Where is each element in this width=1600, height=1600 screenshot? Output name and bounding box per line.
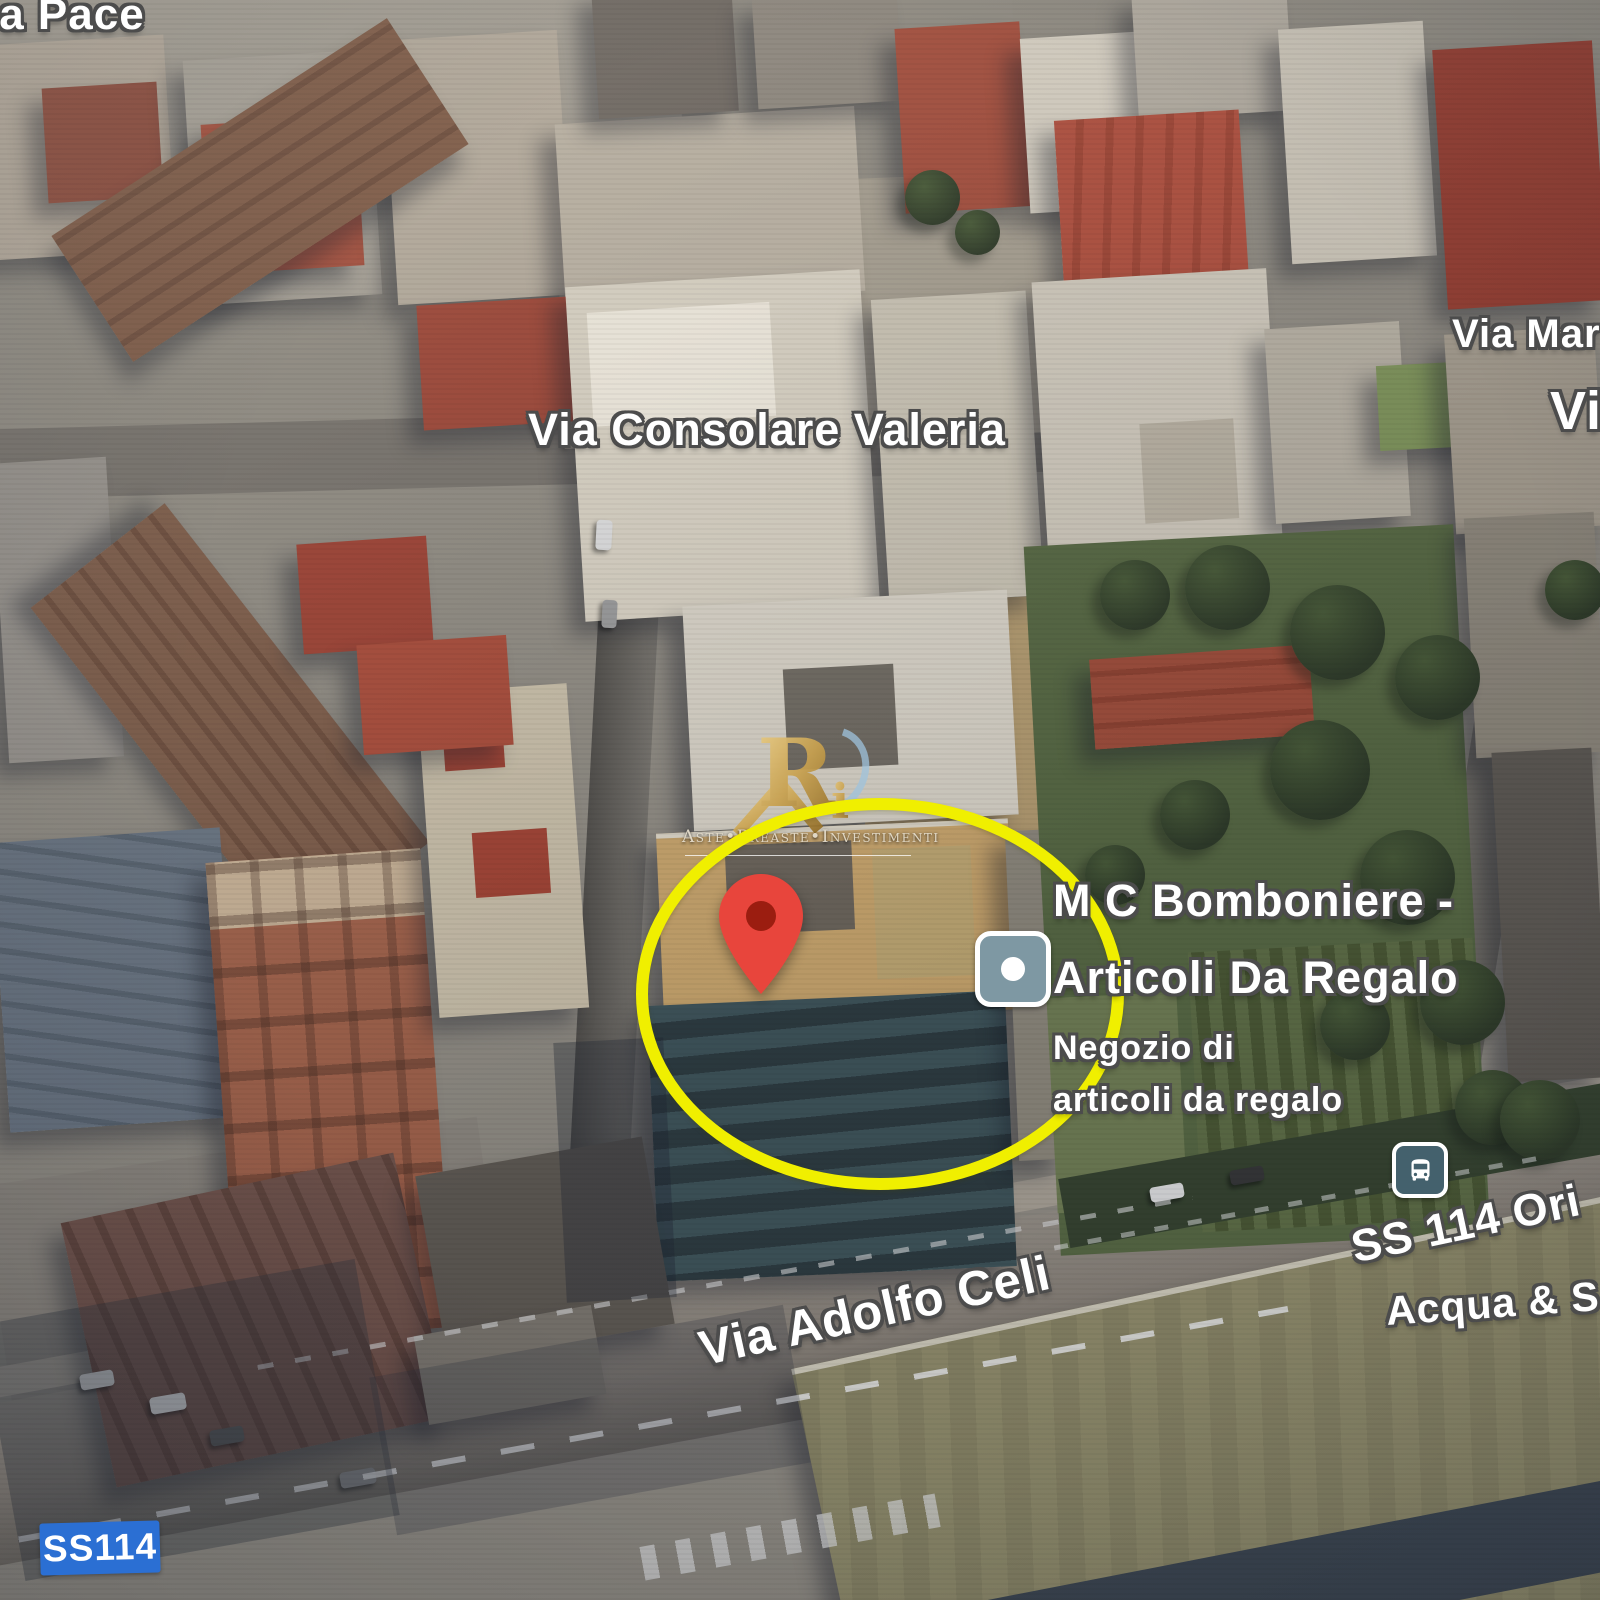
tree xyxy=(1100,560,1170,630)
shop-icon[interactable] xyxy=(975,931,1051,1007)
car xyxy=(339,1467,377,1489)
tree xyxy=(1185,545,1270,630)
business-desc-line1: Negozio di xyxy=(1053,1022,1459,1074)
tree xyxy=(955,210,1000,255)
lane-dashes xyxy=(0,1306,1288,1580)
business-name-line2: Articoli Da Regalo xyxy=(1053,939,1459,1016)
bus-glyph-icon xyxy=(1407,1157,1434,1184)
tree xyxy=(1395,635,1480,720)
location-pin-icon[interactable] xyxy=(719,874,803,994)
tree xyxy=(1270,720,1370,820)
street-label-vi: Vi xyxy=(1550,380,1600,442)
tree xyxy=(1545,560,1600,620)
business-desc-line2: articoli da regalo xyxy=(1053,1074,1459,1126)
crosswalk xyxy=(639,1493,940,1580)
car xyxy=(1229,1165,1265,1186)
car xyxy=(209,1425,245,1447)
street-label-via-pace: ia Pace xyxy=(0,0,145,40)
tree xyxy=(1290,585,1385,680)
street-label-via-consolare-valeria: Via Consolare Valeria xyxy=(528,404,1006,456)
tree xyxy=(1500,1080,1580,1160)
satellite-map[interactable]: R i Aste•Preaste•Investimenti ia Pace Vi… xyxy=(0,0,1600,1600)
car xyxy=(79,1369,115,1391)
car xyxy=(1149,1182,1185,1203)
business-label[interactable]: M C Bomboniere - Articoli Da Regalo Nego… xyxy=(1053,862,1459,1126)
car xyxy=(595,520,613,551)
shop-icon-dot xyxy=(1001,957,1025,981)
bus-stop-icon[interactable] xyxy=(1392,1142,1448,1198)
street-label-via-mar: Via Mar xyxy=(1452,312,1600,357)
car xyxy=(601,600,617,629)
highlight-circle xyxy=(636,798,1124,1190)
tree xyxy=(1160,780,1230,850)
car xyxy=(149,1392,187,1415)
business-name-line1: M C Bomboniere - xyxy=(1053,862,1459,939)
tree xyxy=(905,170,960,225)
route-badge-ss114: SS114 xyxy=(39,1520,160,1575)
